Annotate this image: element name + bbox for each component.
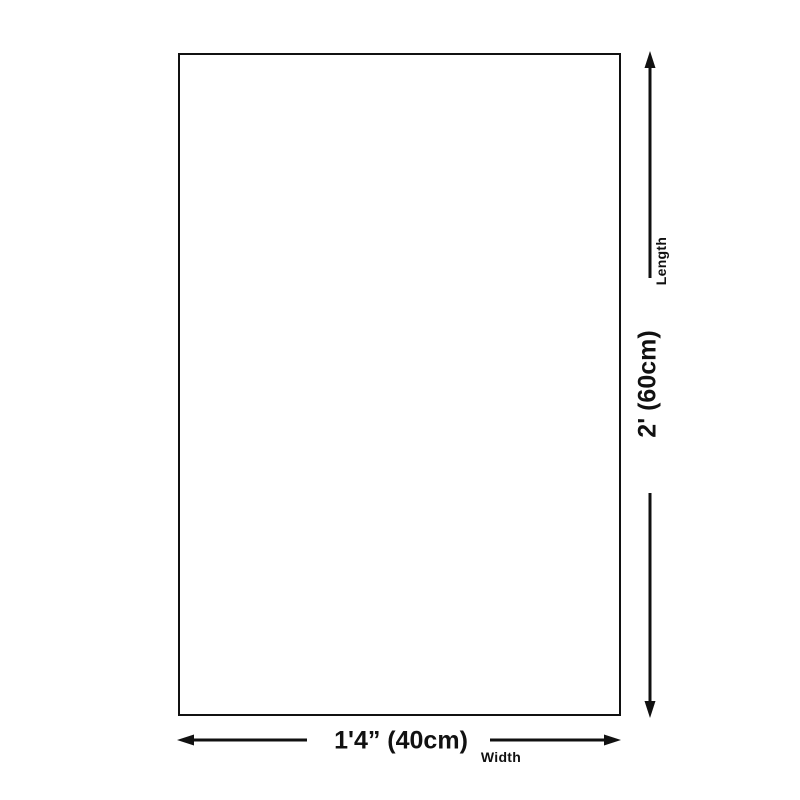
length-axis-label: Length xyxy=(654,237,668,285)
arrow-right-head-icon xyxy=(604,735,621,746)
width-value-label: 1'4” (40cm) xyxy=(334,729,468,754)
product-outline-rectangle xyxy=(178,53,621,716)
arrow-up-head-icon xyxy=(645,51,656,68)
length-value-label: 2' (60cm) xyxy=(636,330,661,437)
arrow-down-head-icon xyxy=(645,701,656,718)
arrow-left-head-icon xyxy=(177,735,194,746)
width-axis-label: Width xyxy=(481,750,521,764)
dimension-diagram: 2' (60cm) Length 1'4” (40cm) Width xyxy=(0,0,800,800)
